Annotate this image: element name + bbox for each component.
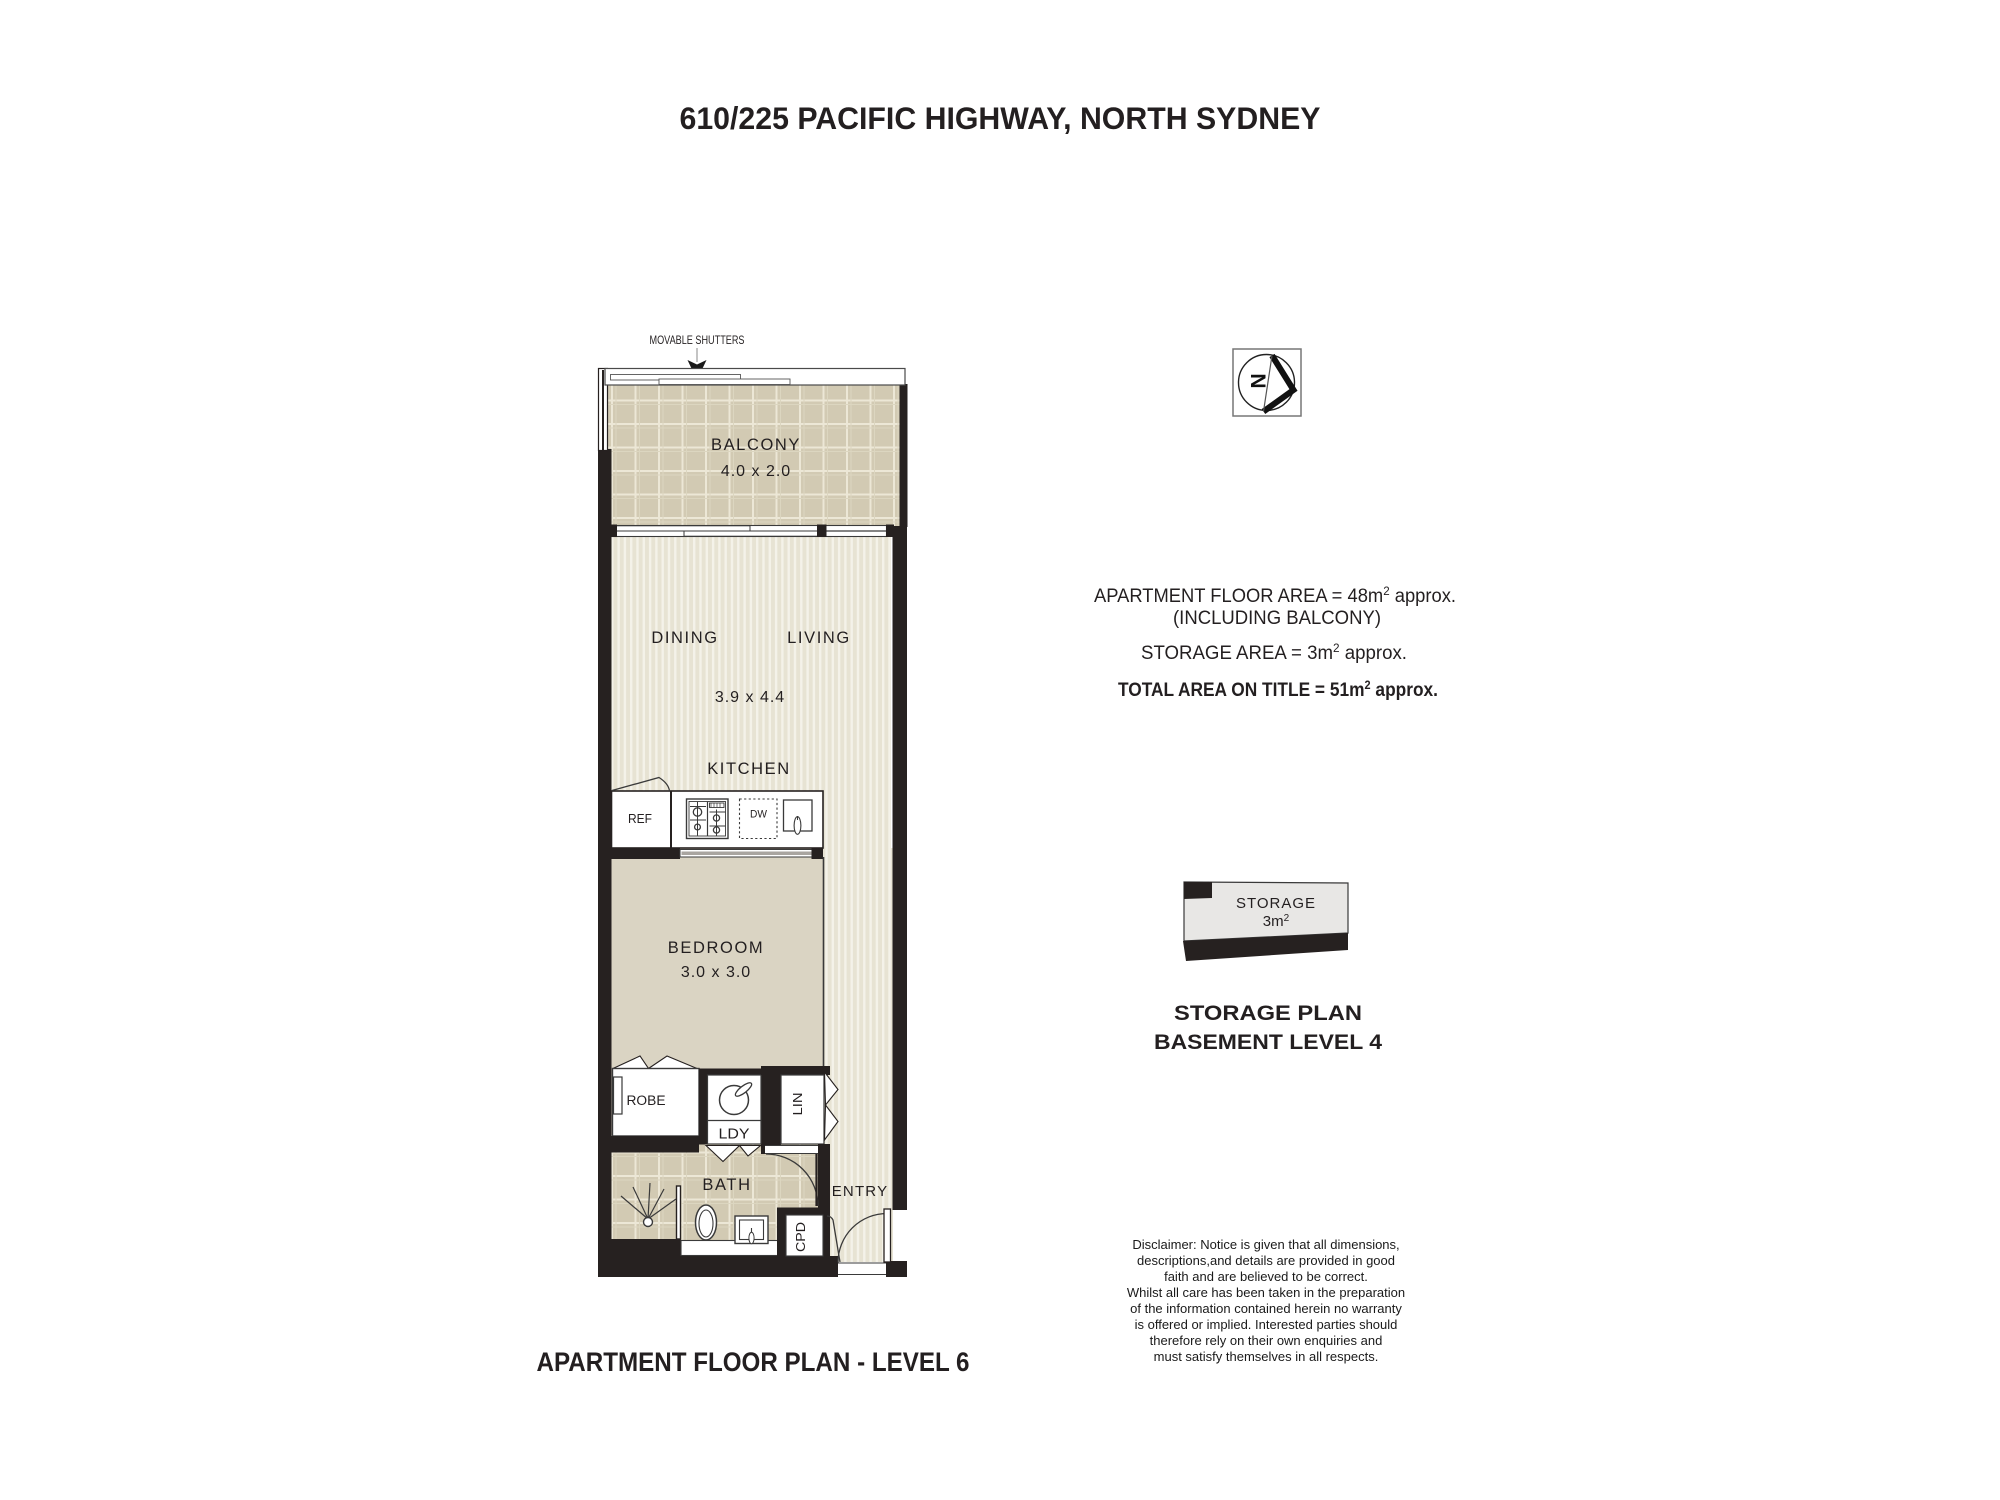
svg-text:Disclaimer: Notice is given th: Disclaimer: Notice is given that all dim… [1132, 1237, 1399, 1252]
svg-text:BASEMENT LEVEL 4: BASEMENT LEVEL 4 [1154, 1030, 1382, 1054]
svg-text:APARTMENT FLOOR AREA = 48m2 a: APARTMENT FLOOR AREA = 48m2 approx. [1094, 584, 1456, 607]
svg-text:BEDROOM: BEDROOM [668, 939, 764, 957]
svg-text:DINING: DINING [651, 629, 718, 647]
svg-text:DW: DW [750, 809, 768, 821]
svg-text:descriptions,and details are p: descriptions,and details are provided in… [1137, 1253, 1395, 1268]
svg-text:4.0 x 2.0: 4.0 x 2.0 [721, 463, 791, 480]
svg-text:3.0 x 3.0: 3.0 x 3.0 [681, 964, 751, 981]
svg-text:therefore rely on their own en: therefore rely on their own enquiries an… [1150, 1333, 1383, 1348]
svg-text:ENTRY: ENTRY [832, 1183, 889, 1200]
svg-text:LDY: LDY [719, 1127, 750, 1143]
svg-text:KITCHEN: KITCHEN [707, 760, 791, 778]
svg-text:N: N [1246, 373, 1269, 388]
svg-text:MOVABLE SHUTTERS: MOVABLE SHUTTERS [650, 333, 745, 347]
svg-text:3.9 x 4.4: 3.9 x 4.4 [715, 689, 785, 706]
svg-text:ROBE: ROBE [627, 1093, 666, 1108]
svg-text:of the information contained h: of the information contained herein no w… [1130, 1301, 1402, 1316]
svg-text:APARTMENT FLOOR PLAN - LEVEL 6: APARTMENT FLOOR PLAN - LEVEL 6 [537, 1347, 970, 1377]
svg-text:LIVING: LIVING [787, 629, 851, 647]
svg-text:STORAGE AREA = 3m2 approx.: STORAGE AREA = 3m2 approx. [1141, 641, 1407, 664]
svg-text:must satisfy themselves in all: must satisfy themselves in all respects. [1154, 1349, 1379, 1364]
svg-text:LIN: LIN [790, 1093, 805, 1116]
svg-text:(INCLUDING BALCONY): (INCLUDING BALCONY) [1173, 608, 1381, 629]
svg-text:is offered or implied. Interes: is offered or implied. Interested partie… [1135, 1317, 1398, 1332]
svg-text:REF: REF [628, 812, 652, 826]
svg-text:610/225 PACIFIC HIGHWAY, NORTH: 610/225 PACIFIC HIGHWAY, NORTH SYDNEY [680, 100, 1321, 136]
svg-text:TOTAL AREA ON TITLE = 51m2 ap: TOTAL AREA ON TITLE = 51m2 approx. [1118, 678, 1438, 701]
svg-text:faith and are believed to be c: faith and are believed to be correct. [1164, 1269, 1368, 1284]
svg-text:STORAGE PLAN: STORAGE PLAN [1174, 1001, 1362, 1025]
svg-text:BATH: BATH [702, 1176, 751, 1194]
svg-text:CPD: CPD [793, 1222, 808, 1252]
svg-text:BALCONY: BALCONY [711, 436, 801, 454]
svg-text:STORAGE: STORAGE [1236, 895, 1316, 912]
svg-text:Whilst all care has been taken: Whilst all care has been taken in the pr… [1127, 1285, 1405, 1300]
